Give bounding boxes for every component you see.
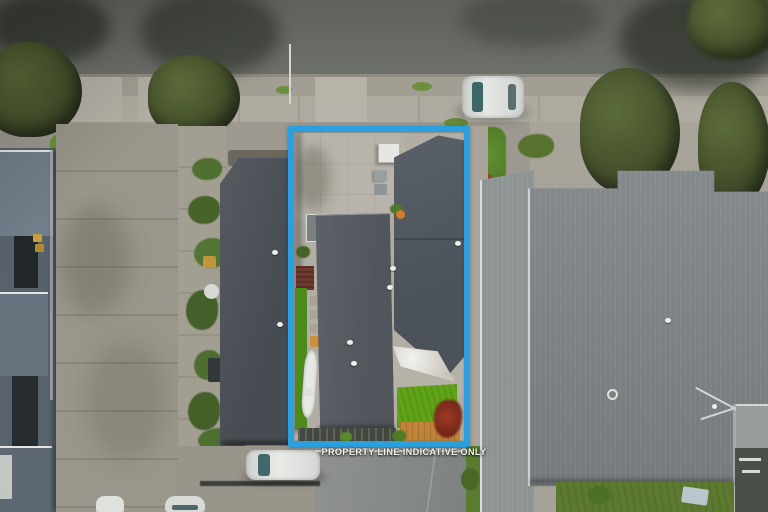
antenna-hub	[712, 404, 717, 409]
balcony	[0, 455, 12, 499]
shrub	[518, 134, 554, 158]
property-line-watermark: PROPERTY LINE INDICATIVE ONLY	[321, 447, 486, 458]
car-windshield	[472, 82, 483, 112]
clothesline	[681, 486, 709, 505]
aerial-photo: PROPERTY LINE INDICATIVE ONLY	[0, 0, 768, 512]
driveway-stain	[86, 340, 166, 460]
tree-canopy	[688, 0, 768, 60]
yellow-item	[203, 256, 216, 268]
right-neighbour-main-roof	[528, 166, 768, 486]
property-line-box	[288, 126, 470, 447]
right-neighbour-wing-roof	[480, 170, 534, 512]
car-windshield	[258, 454, 270, 476]
railing	[742, 470, 760, 473]
shrub	[461, 468, 479, 490]
shrub	[588, 486, 610, 504]
light-pole	[289, 44, 291, 104]
ring-vent	[607, 389, 618, 400]
garage-roof	[315, 450, 466, 512]
left-neighbour-roof	[220, 158, 292, 445]
roof-vent	[665, 318, 671, 323]
grass-tuft	[412, 82, 432, 91]
shrub	[192, 158, 222, 180]
white-ball	[204, 284, 219, 299]
car-nose	[96, 496, 124, 512]
driveway-stain	[60, 205, 130, 315]
apartment-roof-panel	[0, 292, 48, 376]
apartment-roof-panel	[0, 150, 53, 236]
car-rear-window	[508, 84, 516, 110]
car-windshield	[172, 505, 198, 510]
yellow-bin	[33, 234, 42, 242]
apartment-void	[12, 376, 38, 446]
shrub	[188, 196, 220, 224]
railing	[739, 458, 761, 461]
shrub	[188, 392, 220, 430]
yellow-bin	[35, 244, 44, 252]
roof-vent	[277, 322, 283, 327]
roof-vent	[272, 250, 278, 255]
